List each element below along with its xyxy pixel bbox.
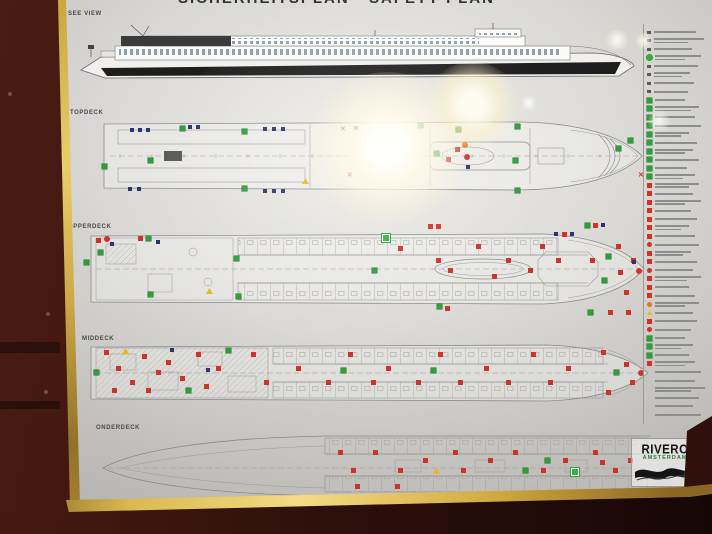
- legend-symbol-icon: [647, 65, 651, 68]
- safety-symbol-icon: [102, 164, 107, 169]
- safety-symbol-icon: [226, 348, 231, 353]
- safety-symbol-icon: [453, 450, 458, 455]
- legend-row: [647, 292, 709, 301]
- safety-symbol-icon: [138, 128, 142, 132]
- legend-row: [647, 198, 709, 207]
- safety-symbol-icon: [281, 189, 285, 193]
- safety-symbol-icon: [156, 240, 160, 244]
- legend-row: [647, 122, 709, 131]
- safety-symbol-icon: [170, 348, 174, 352]
- safety-symbol-icon: [466, 165, 470, 169]
- legend-row: [647, 45, 709, 54]
- deck-label-topdeck: TOPDECK: [70, 110, 103, 116]
- legend-row: [647, 394, 709, 403]
- poster-title-cropped: SICHERHEITSPLAN · SAFETY PLAN: [178, 0, 648, 7]
- safety-symbol-icon: [590, 258, 595, 263]
- legend-symbol-icon: [647, 174, 652, 179]
- legend-symbol-icon: [647, 378, 652, 383]
- legend-row: [647, 249, 709, 258]
- legend-symbol-icon: [647, 293, 652, 298]
- legend-row: [647, 28, 709, 37]
- legend-row: [647, 402, 709, 411]
- legend-symbol-icon: [647, 31, 651, 34]
- safety-symbol-icon: [458, 380, 463, 385]
- safety-symbol-icon: [142, 354, 147, 359]
- safety-symbol-icon: [180, 376, 185, 381]
- safety-symbol-icon: [488, 458, 493, 463]
- safety-symbol-icon: [436, 258, 441, 263]
- legend-row: [647, 317, 709, 326]
- onderdeck-safety-icons: [95, 430, 655, 502]
- safety-symbol-icon: [600, 460, 605, 465]
- safety-symbol-icon: [523, 468, 528, 473]
- safety-symbol-icon: [326, 380, 331, 385]
- safety-symbol-icon: [636, 268, 642, 274]
- middeck-safety-icons: [88, 342, 653, 404]
- wood-reflection-speck: [8, 92, 12, 96]
- safety-symbol-icon: [351, 468, 356, 473]
- legend-row: [647, 79, 709, 88]
- legend-symbol-icon: [647, 132, 652, 137]
- legend-divider-line: [643, 24, 644, 424]
- legend-row: [647, 113, 709, 122]
- safety-symbol-icon: [395, 484, 400, 489]
- safety-symbol-icon: [263, 189, 267, 193]
- safety-symbol-icon: [122, 348, 129, 354]
- safety-symbol-icon: [130, 128, 134, 132]
- safety-symbol-icon: [348, 352, 353, 357]
- safety-symbol-icon: [148, 292, 153, 297]
- safety-symbol-icon: [462, 142, 468, 148]
- legend-row: [647, 62, 709, 71]
- safety-symbol-icon: [563, 458, 568, 463]
- legend-symbol-icon: [647, 251, 652, 256]
- safety-symbol-icon: [236, 294, 241, 299]
- safety-symbol-icon: [84, 260, 89, 265]
- safety-symbol-icon: [281, 127, 285, 131]
- legend-row: [647, 266, 709, 275]
- safety-symbol-icon: [436, 224, 441, 229]
- safety-symbol-icon: [616, 146, 621, 151]
- poster-title: SICHERHEITSPLAN · SAFETY PLAN: [178, 0, 648, 7]
- wood-groove: [0, 401, 60, 409]
- legend-symbol-icon: [647, 370, 652, 375]
- legend-row: [647, 88, 709, 97]
- safety-symbol-icon: [548, 380, 553, 385]
- legend-row: [647, 283, 709, 292]
- safety-symbol-icon: [602, 278, 607, 283]
- safety-symbol-icon: [570, 232, 574, 236]
- safety-symbol-icon: [98, 250, 103, 255]
- safety-plan-poster: SICHERHEITSPLAN · SAFETY PLAN SEE VIEW T…: [0, 0, 712, 534]
- safety-symbol-icon: [110, 242, 114, 246]
- legend-symbol-icon: [647, 404, 652, 409]
- safety-symbol-icon: [562, 232, 567, 237]
- safety-symbol-icon: [242, 186, 247, 191]
- safety-symbol-icon: [373, 450, 378, 455]
- safety-symbol-icon: [618, 270, 623, 275]
- legend-row: [647, 351, 709, 360]
- legend-symbol-icon: [647, 208, 652, 213]
- safety-symbol-icon: [112, 388, 117, 393]
- legend-row: [647, 37, 709, 46]
- safety-symbol-icon: [206, 368, 210, 372]
- safety-symbol-icon: [556, 258, 561, 263]
- logo-wave-icon: [635, 464, 695, 482]
- safety-symbol-icon: [554, 232, 558, 236]
- legend-row: [647, 343, 709, 352]
- legend-symbol-icon: [647, 361, 652, 366]
- safety-symbol-icon: [355, 484, 360, 489]
- legend-row: [647, 232, 709, 241]
- safety-symbol-icon: [398, 246, 403, 251]
- safety-symbol-icon: [626, 310, 631, 315]
- safety-symbol-icon: [264, 380, 269, 385]
- legend-symbol-icon: [647, 268, 652, 273]
- safety-symbol-icon: [513, 450, 518, 455]
- safety-symbol-icon: [138, 236, 143, 241]
- safety-symbol-icon: [146, 128, 150, 132]
- safety-symbol-icon: [196, 125, 200, 129]
- safety-symbol-icon: [515, 188, 520, 193]
- legend-symbol-icon: [647, 166, 652, 171]
- legend-symbol-icon: [647, 82, 651, 85]
- safety-symbol-icon: [204, 384, 209, 389]
- safety-symbol-icon: [632, 260, 636, 264]
- safety-symbol-icon: [614, 370, 619, 375]
- legend-symbol-icon: [647, 353, 652, 358]
- legend-symbol-icon: [647, 115, 652, 120]
- topdeck-safety-icons: [100, 118, 648, 194]
- legend-symbol-icon: [647, 310, 652, 315]
- legend-symbol-icon: [647, 276, 652, 281]
- legend-symbol-icon: [647, 55, 652, 60]
- logo-line2: AMSTERDAM: [632, 455, 698, 461]
- safety-symbol-icon: [206, 288, 213, 294]
- safety-symbol-icon: [608, 310, 613, 315]
- legend-symbol-icon: [647, 336, 652, 341]
- wood-groove: [0, 342, 60, 353]
- safety-symbol-icon: [146, 236, 151, 241]
- safety-symbol-icon: [263, 127, 267, 131]
- legend-symbol-icon: [647, 259, 652, 264]
- legend-symbol-icon: [647, 327, 652, 332]
- legend-row: [647, 224, 709, 233]
- safety-symbol-icon: [372, 268, 377, 273]
- safety-symbol-icon: [416, 380, 421, 385]
- safety-symbol-icon: [448, 268, 453, 273]
- safety-symbol-icon: [431, 368, 436, 373]
- side-view-label: SEE VIEW: [68, 11, 102, 17]
- legend-row: [647, 241, 709, 250]
- legend-row: [647, 105, 709, 114]
- legend-symbol-icon: [647, 234, 652, 239]
- legend-row: [647, 139, 709, 148]
- safety-symbol-icon: [513, 158, 518, 163]
- safety-symbol-icon: [456, 127, 461, 132]
- safety-symbol-icon: [531, 352, 536, 357]
- legend-symbol-icon: [647, 387, 652, 392]
- safety-symbol-icon: [418, 123, 423, 128]
- safety-symbol-icon: [492, 274, 497, 279]
- legend-symbol-icon: [647, 285, 652, 290]
- legend-symbol-icon: [647, 39, 651, 42]
- legend-symbol-icon: [647, 191, 652, 196]
- legend-symbol-icon: [647, 412, 652, 417]
- legend-row: [647, 300, 709, 309]
- legend-symbol-icon: [647, 48, 651, 51]
- safety-symbol-icon: [484, 366, 489, 371]
- safety-symbol-icon: [445, 306, 450, 311]
- legend-row: [647, 96, 709, 105]
- safety-symbol-icon: [216, 366, 221, 371]
- legend-symbol-icon: [647, 140, 652, 145]
- legend-symbol-icon: [647, 98, 652, 103]
- safety-symbol-icon: [96, 238, 101, 243]
- legend-symbol-icon: [647, 395, 652, 400]
- safety-symbol-icon: [242, 129, 247, 134]
- safety-symbol-icon: [128, 187, 132, 191]
- wood-reflection-speck: [44, 390, 48, 394]
- legend-row: [647, 54, 709, 63]
- safety-symbol-icon: [540, 244, 545, 249]
- safety-symbol-icon: [613, 468, 618, 473]
- safety-symbol-icon: [188, 125, 192, 129]
- safety-symbol-icon: [455, 147, 460, 152]
- legend-row: [647, 181, 709, 190]
- safety-symbol-icon: [398, 468, 403, 473]
- safety-symbol-icon: [234, 256, 239, 261]
- legend-row: [647, 309, 709, 318]
- ship-side-view-drawing: [75, 24, 645, 90]
- safety-symbol-icon: [434, 151, 439, 156]
- legend-row: [647, 164, 709, 173]
- safety-symbol-icon: [371, 380, 376, 385]
- legend-row: [647, 258, 709, 267]
- safety-symbol-icon: [251, 352, 256, 357]
- safety-symbol-icon: [180, 126, 185, 131]
- safety-symbol-icon: [588, 310, 593, 315]
- legend-row: [647, 215, 709, 224]
- safety-symbol-icon: [528, 268, 533, 273]
- safety-symbol-icon: [601, 223, 605, 227]
- safety-symbol-icon: [382, 234, 390, 242]
- safety-symbol-icon: [130, 380, 135, 385]
- safety-symbol-icon: [166, 360, 171, 365]
- safety-symbol-icon: [341, 368, 346, 373]
- safety-symbol-icon: [624, 362, 629, 367]
- safety-symbol-icon: [156, 370, 161, 375]
- safety-symbol-icon: [593, 450, 598, 455]
- legend-row: [647, 326, 709, 335]
- safety-symbol-icon: [433, 468, 440, 474]
- safety-symbol-icon: [616, 244, 621, 249]
- safety-symbol-icon: [571, 468, 579, 476]
- safety-symbol-icon: [545, 458, 550, 463]
- safety-symbol-icon: [146, 388, 151, 393]
- photo-of-framed-safety-plan: { "poster": { "title": "SICHERHEITSPLAN …: [0, 0, 712, 534]
- legend-row: [647, 156, 709, 165]
- legend-row: [647, 207, 709, 216]
- wood-reflection-speck: [46, 312, 50, 316]
- safety-symbol-icon: [461, 468, 466, 473]
- safety-symbol-icon: [630, 380, 635, 385]
- legend-row: [647, 147, 709, 156]
- legend-symbol-icon: [647, 242, 652, 247]
- legend-symbol-icon: [647, 73, 651, 76]
- legend-symbol-icon: [647, 217, 652, 222]
- legend-row: [647, 173, 709, 182]
- safety-symbol-icon: [606, 254, 611, 259]
- legend-symbol-icon: [647, 302, 652, 307]
- safety-symbol-icon: [137, 187, 141, 191]
- safety-symbol-icon: [515, 124, 520, 129]
- flash-glare-spot: [520, 96, 538, 110]
- safety-symbol-icon: [601, 350, 606, 355]
- safety-symbols-legend: [647, 28, 709, 419]
- safety-symbol-icon: [624, 290, 629, 295]
- legend-row: [647, 385, 709, 394]
- legend-row: [647, 334, 709, 343]
- safety-symbol-icon: [340, 126, 347, 133]
- safety-symbol-icon: [566, 366, 571, 371]
- safety-symbol-icon: [506, 258, 511, 263]
- safety-symbol-icon: [116, 366, 121, 371]
- legend-row: [647, 130, 709, 139]
- safety-symbol-icon: [476, 244, 481, 249]
- legend-row: [647, 190, 709, 199]
- safety-symbol-icon: [354, 126, 358, 130]
- legend-row: [647, 411, 709, 420]
- legend-symbol-icon: [647, 344, 652, 349]
- legend-symbol-icon: [647, 149, 652, 154]
- safety-symbol-icon: [446, 157, 451, 162]
- safety-symbol-icon: [186, 388, 191, 393]
- safety-symbol-icon: [272, 127, 276, 131]
- safety-symbol-icon: [541, 468, 546, 473]
- safety-symbol-icon: [506, 380, 511, 385]
- safety-symbol-icon: [196, 352, 201, 357]
- safety-symbol-icon: [148, 158, 153, 163]
- safety-symbol-icon: [94, 370, 99, 375]
- safety-symbol-icon: [104, 350, 109, 355]
- safety-symbol-icon: [347, 172, 354, 179]
- opperdeck-safety-icons: [88, 230, 648, 308]
- safety-symbol-icon: [628, 138, 633, 143]
- legend-symbol-icon: [647, 106, 652, 111]
- safety-symbol-icon: [438, 352, 443, 357]
- legend-row: [647, 368, 709, 377]
- legend-symbol-icon: [647, 90, 651, 93]
- safety-symbol-icon: [428, 224, 433, 229]
- safety-symbol-icon: [272, 189, 276, 193]
- legend-symbol-icon: [647, 200, 652, 205]
- safety-symbol-icon: [437, 304, 442, 309]
- legend-symbol-icon: [647, 157, 652, 162]
- legend-row: [647, 360, 709, 369]
- safety-symbol-icon: [423, 458, 428, 463]
- rivero-logo: RIVERO AMSTERDAM: [631, 438, 699, 487]
- legend-row: [647, 377, 709, 386]
- legend-symbol-icon: [647, 123, 652, 128]
- legend-row: [647, 275, 709, 284]
- legend-symbol-icon: [647, 319, 652, 324]
- safety-symbol-icon: [386, 366, 391, 371]
- legend-symbol-icon: [647, 225, 652, 230]
- safety-symbol-icon: [338, 450, 343, 455]
- legend-row: [647, 71, 709, 80]
- safety-symbol-icon: [606, 390, 611, 395]
- safety-symbol-icon: [302, 178, 309, 184]
- safety-symbol-icon: [593, 223, 598, 228]
- safety-symbol-icon: [585, 223, 590, 228]
- safety-symbol-icon: [296, 366, 301, 371]
- legend-symbol-icon: [647, 183, 652, 188]
- safety-symbol-icon: [464, 154, 470, 160]
